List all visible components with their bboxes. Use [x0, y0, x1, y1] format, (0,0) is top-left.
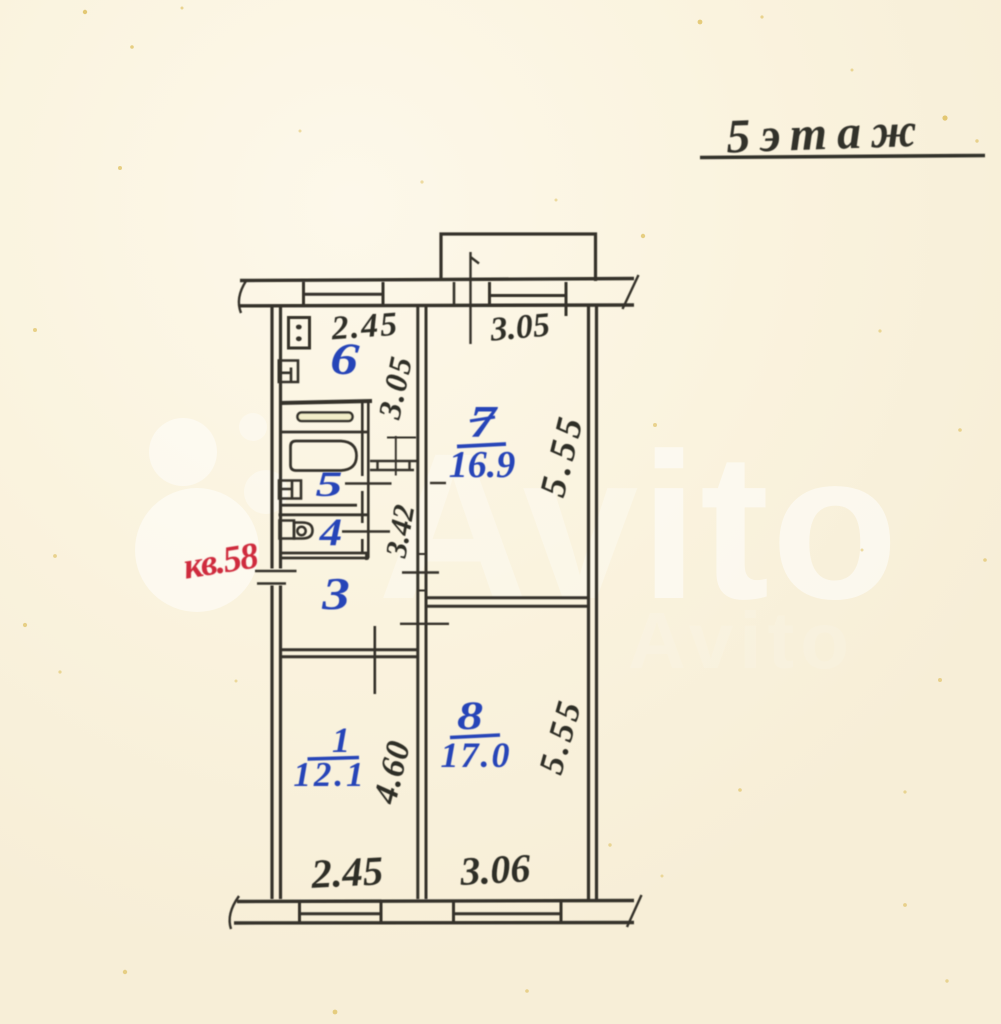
svg-text:17.0: 17.0	[441, 735, 512, 775]
svg-text:16.9: 16.9	[449, 444, 516, 486]
svg-text:3.05: 3.05	[488, 307, 551, 349]
svg-text:4: 4	[319, 512, 342, 555]
svg-text:12.1: 12.1	[293, 755, 366, 794]
svg-text:3: 3	[321, 568, 350, 619]
svg-text:3.06: 3.06	[458, 845, 531, 894]
svg-text:2.45: 2.45	[309, 847, 384, 897]
svg-text:8: 8	[457, 695, 483, 739]
svg-text:1: 1	[332, 720, 350, 760]
svg-text:5: 5	[316, 464, 343, 504]
svg-text:Avito: Avito	[628, 596, 855, 685]
